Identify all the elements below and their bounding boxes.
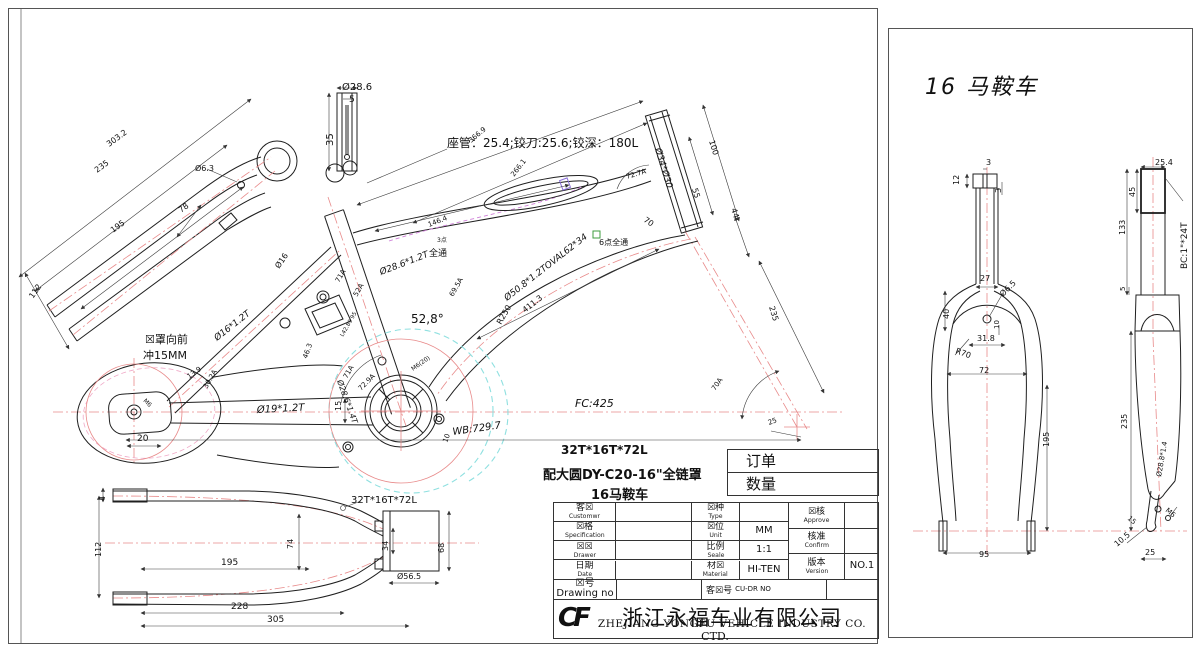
dim-label: 46.3	[301, 342, 314, 359]
dim-label: 25	[1145, 548, 1155, 557]
tb-drawer-value	[616, 541, 692, 560]
tb-approve-label: ☒核Approve	[789, 503, 845, 529]
dim-label: 6点全通	[599, 237, 628, 247]
dim-label: 78	[177, 201, 191, 214]
dim-label: 40	[942, 309, 951, 319]
dim-label: 10	[993, 320, 1001, 329]
company-name-en: ZHEJIANG YONGFU VEHICLE INDUSTRY CO.	[590, 618, 874, 630]
dim-label: 3	[986, 158, 991, 167]
dim-label: 30.2A	[202, 368, 219, 390]
tb-spec-label: ☒格Specification	[554, 522, 616, 541]
spec-line-3: 16马鞍车	[591, 484, 648, 503]
seatpost-detail	[326, 88, 447, 183]
dim-label: 12	[952, 175, 961, 185]
dim-label: 68	[437, 543, 446, 553]
dim-label: 70	[642, 215, 656, 228]
fork-side-view	[1127, 157, 1183, 559]
dim-label: 全通	[429, 247, 447, 259]
dim-label: 32T*16T*72L	[351, 495, 417, 506]
tb-material-label: 材☒Material	[692, 561, 740, 580]
dim-label: 133	[1118, 220, 1127, 235]
tb-version-value: NO.1	[845, 554, 879, 580]
title-block-right: ☒核Approve 核准Confirm 版本Version NO.1	[788, 503, 879, 580]
dim-label: 10	[441, 433, 452, 444]
tb-approve-value	[845, 503, 879, 529]
dim-label: 34	[381, 541, 390, 551]
title-block: 客☒Customwr ☒种Type ☒格Specification ☒位Unit…	[553, 502, 879, 639]
dim-label: 303.2	[105, 128, 129, 149]
tb-type-value	[740, 503, 788, 522]
tb-material-value: HI-TEN	[740, 561, 788, 580]
tb-unit-label: ☒位Unit	[692, 522, 740, 541]
tb-customer-value	[616, 503, 692, 522]
dim-label: 74	[286, 539, 295, 549]
dim-label: WB:729.7	[452, 420, 502, 438]
tb-cudr-value	[827, 580, 878, 599]
dim-label: 228	[231, 602, 248, 612]
tb-version-label: 版本Version	[789, 554, 845, 580]
dim-label: 72.9A	[357, 372, 377, 392]
dim-label: Ø16	[272, 251, 290, 270]
tb-customer-label: 客☒Customwr	[554, 503, 616, 522]
dim-label: 35	[325, 133, 336, 146]
dim-label: 52,8°	[411, 312, 444, 326]
dim-label: M6(20)	[410, 355, 431, 373]
company-suffix: CTD.	[553, 630, 877, 643]
dim-label: 195	[1042, 432, 1051, 447]
dim-label: Ø28.6*1.2T	[377, 249, 431, 279]
chainstay-bottom-view	[99, 488, 479, 626]
quantity-label: 数量	[728, 473, 878, 495]
tb-cudr-label: 客☒号CU-DR NO	[702, 580, 827, 599]
tb-type-label: ☒种Type	[692, 503, 740, 522]
dim-label: 71A	[334, 268, 348, 284]
dim-label: 25.4	[1155, 158, 1173, 167]
dim-label: 45	[1128, 187, 1137, 197]
dim-label: 冲15MM	[143, 348, 187, 362]
dim-label: 72	[979, 366, 989, 375]
tb-scale-label: 比例Seale	[692, 541, 740, 560]
cad-workspace: Ø28.6535座管：25.4;铰刀:25.6;铰深：180L366.9266.…	[0, 0, 1200, 646]
dim-label: 25	[767, 416, 778, 427]
dim-label: 95	[979, 550, 989, 559]
dim-label: 15	[334, 401, 343, 411]
dim-label: 5	[349, 95, 355, 105]
tb-unit-value: MM	[740, 522, 788, 541]
dim-label: 10.5	[1113, 530, 1132, 548]
fork-front-view	[932, 167, 1047, 557]
dim-label: 5	[1119, 287, 1127, 291]
title-block-row5: ☒号Drawing no 客☒号CU-DR NO	[554, 580, 878, 600]
dim-label: 235	[767, 305, 780, 322]
dim-label: 69.5A	[448, 276, 465, 298]
dim-label: M6	[142, 397, 153, 408]
spec-line-1: 32T*16T*72L	[561, 443, 648, 457]
dim-label: Ø6.3	[195, 163, 214, 173]
dim-label: 112	[27, 282, 43, 300]
order-quantity-box: 订单 数量	[727, 449, 879, 496]
dim-label: 31.8	[977, 334, 995, 343]
fork-drawing-svg: 31232740Ø6.51031.8R70721959525.445133BC:…	[889, 29, 1192, 637]
dim-label: 71A	[342, 364, 356, 380]
tb-drawingno-label: ☒号Drawing no	[554, 580, 617, 599]
dim-label: 112	[94, 542, 103, 557]
main-drawing-sheet: Ø28.6535座管：25.4;铰刀:25.6;铰深：180L366.9266.…	[8, 8, 878, 644]
title-block-left: 客☒Customwr ☒种Type ☒格Specification ☒位Unit…	[554, 503, 788, 580]
dim-label: 27	[980, 274, 990, 283]
dim-label: R70	[954, 346, 972, 360]
tb-drawingno-value	[617, 580, 702, 599]
spec-line-2: 配大圆DY-C20-16"全链罩	[543, 464, 702, 483]
seatstay-assembly-view	[19, 99, 297, 349]
dim-label: 70A	[710, 376, 725, 392]
dim-label: BC:1"*24T	[1180, 222, 1190, 269]
dim-label: 195	[109, 218, 127, 234]
dim-label: 55	[690, 187, 702, 199]
tb-spec-value	[616, 522, 692, 541]
dim-label: 3点	[437, 236, 447, 244]
dim-label: 4	[98, 496, 107, 501]
fork-drawing-sheet: 16 马鞍车	[888, 28, 1193, 638]
company-logo: CF	[558, 603, 587, 633]
dim-label: Ø34*Ø30	[652, 146, 675, 190]
tb-confirm-value	[845, 529, 879, 555]
dim-label: 3	[994, 188, 1003, 193]
dim-label: 305	[267, 615, 284, 625]
dim-label: ☒罩向前	[145, 332, 188, 346]
dim-label: 52A	[352, 282, 366, 298]
tb-confirm-label: 核准Confirm	[789, 529, 845, 555]
dim-label: 44	[729, 207, 741, 219]
dim-label: 195	[221, 558, 238, 568]
dim-label: 235	[93, 158, 111, 174]
tb-date-value	[616, 561, 692, 580]
dim-label: Ø19*1.2T	[256, 401, 306, 416]
tb-date-label: 日期Date	[554, 561, 616, 580]
dim-label: 20	[137, 434, 149, 444]
dim-label: 100	[707, 139, 720, 156]
dim-label: FC:425	[575, 397, 614, 410]
tb-drawer-label: ☒☒Drawer	[554, 541, 616, 560]
dim-label: 15	[1126, 514, 1138, 526]
tb-scale-value: 1:1	[740, 541, 788, 560]
dim-label: 235	[1120, 414, 1129, 429]
dim-label: Ø50.8*1.2TOVAL62*34	[501, 231, 590, 304]
dim-label: Ø6.5	[997, 278, 1018, 299]
order-label: 订单	[728, 450, 878, 473]
dim-label: Ø56.5	[397, 571, 421, 581]
dim-label: Ø28.6	[342, 81, 372, 93]
dim-label: 72.7A	[625, 167, 647, 181]
